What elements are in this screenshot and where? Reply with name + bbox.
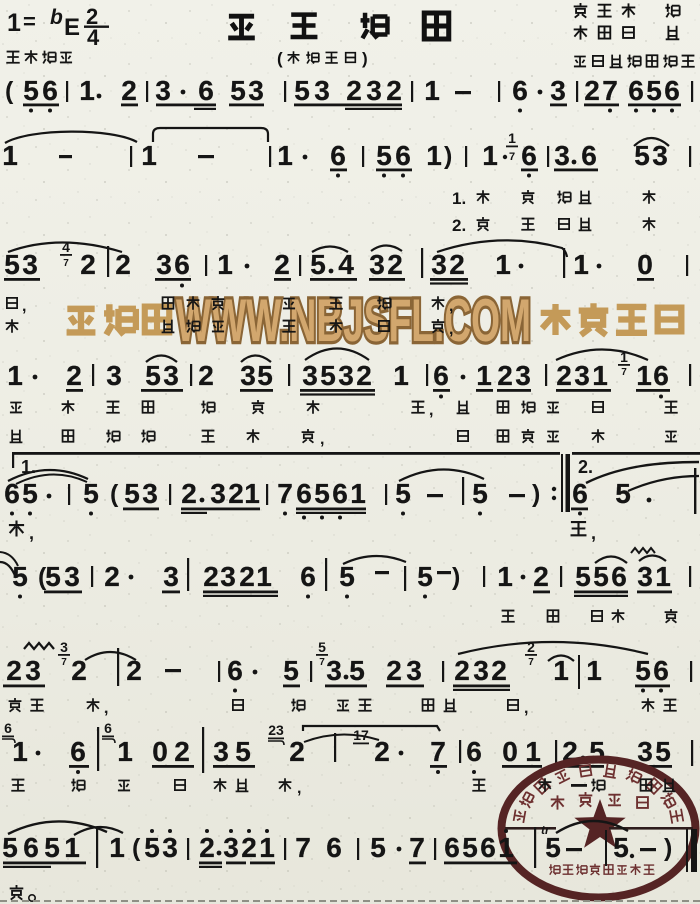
svg-text:4: 4 <box>338 249 354 280</box>
svg-text:0: 0 <box>502 736 518 767</box>
svg-text:17: 17 <box>353 727 369 743</box>
svg-text:1: 1 <box>350 478 366 509</box>
svg-text:3: 3 <box>406 655 422 686</box>
svg-text:2: 2 <box>239 561 255 592</box>
svg-text:1: 1 <box>217 249 233 280</box>
svg-text:5: 5 <box>230 75 246 106</box>
svg-text:2.: 2. <box>452 216 466 235</box>
svg-text:6: 6 <box>104 720 112 736</box>
svg-text:1: 1 <box>525 736 541 767</box>
svg-text:2: 2 <box>198 360 214 391</box>
svg-text:5: 5 <box>44 832 60 863</box>
svg-text:WWW.NBJSFL.COM: WWW.NBJSFL.COM <box>176 287 531 354</box>
svg-text:7: 7 <box>602 75 618 106</box>
svg-text:2: 2 <box>346 75 362 106</box>
svg-text:2: 2 <box>199 832 215 863</box>
svg-text:5: 5 <box>144 832 160 863</box>
svg-text:6: 6 <box>572 478 588 509</box>
svg-text:(: ( <box>132 834 141 862</box>
svg-text:(: ( <box>5 77 14 105</box>
svg-text:3: 3 <box>142 478 158 509</box>
svg-text:5: 5 <box>395 478 411 509</box>
svg-text:6: 6 <box>466 736 482 767</box>
svg-text:1: 1 <box>495 249 511 280</box>
svg-text:5: 5 <box>294 75 310 106</box>
svg-text:2: 2 <box>80 249 96 280</box>
svg-text:1: 1 <box>476 360 492 391</box>
svg-text:7: 7 <box>319 657 325 668</box>
svg-text:,: , <box>297 780 301 797</box>
svg-text:6: 6 <box>326 832 342 863</box>
svg-text:1: 1 <box>498 832 514 863</box>
svg-text:2: 2 <box>491 655 507 686</box>
svg-text:1: 1 <box>592 360 608 391</box>
svg-text:3: 3 <box>248 75 264 106</box>
svg-text:,: , <box>449 321 453 338</box>
svg-text:(: ( <box>110 480 119 508</box>
svg-text:2.: 2. <box>578 457 593 477</box>
svg-text:5: 5 <box>235 736 251 767</box>
svg-text:3: 3 <box>220 561 236 592</box>
svg-text:3: 3 <box>369 249 385 280</box>
svg-text:1: 1 <box>244 478 260 509</box>
svg-text:5: 5 <box>83 478 99 509</box>
svg-text:6: 6 <box>300 561 316 592</box>
svg-text:7: 7 <box>528 657 534 668</box>
svg-text:7: 7 <box>295 832 311 863</box>
svg-text:3: 3 <box>213 736 229 767</box>
svg-text:5: 5 <box>462 832 478 863</box>
svg-text:7: 7 <box>509 151 515 163</box>
svg-text:0: 0 <box>637 249 653 280</box>
svg-text:3: 3 <box>550 75 566 106</box>
svg-text:3: 3 <box>240 360 256 391</box>
svg-text:6: 6 <box>395 140 411 171</box>
svg-text:1: 1 <box>277 140 293 171</box>
svg-text:7: 7 <box>277 478 293 509</box>
svg-text:2: 2 <box>289 736 305 767</box>
svg-text:2: 2 <box>228 478 244 509</box>
svg-text:3: 3 <box>25 655 41 686</box>
svg-text:4: 4 <box>87 25 100 50</box>
svg-text:E: E <box>64 14 80 41</box>
svg-text:3: 3 <box>162 832 178 863</box>
svg-text:1: 1 <box>620 349 628 365</box>
svg-text:2: 2 <box>174 736 190 767</box>
svg-text:2: 2 <box>274 249 290 280</box>
svg-text:3: 3 <box>210 478 226 509</box>
svg-text:2: 2 <box>454 655 470 686</box>
svg-text:2: 2 <box>241 832 257 863</box>
svg-text:6: 6 <box>296 478 312 509</box>
svg-text:5: 5 <box>376 140 392 171</box>
svg-text:,: , <box>29 523 34 543</box>
svg-text:5: 5 <box>257 360 273 391</box>
svg-text:7: 7 <box>430 736 446 767</box>
svg-text:3: 3 <box>64 561 80 592</box>
svg-text:3: 3 <box>106 360 122 391</box>
svg-text:5: 5 <box>2 832 18 863</box>
svg-text:5: 5 <box>349 655 365 686</box>
svg-text:6: 6 <box>628 75 644 106</box>
svg-text:5: 5 <box>320 360 336 391</box>
svg-text:,: , <box>320 431 324 448</box>
svg-text:3: 3 <box>338 360 354 391</box>
svg-text:2: 2 <box>181 478 197 509</box>
svg-text:5: 5 <box>124 478 140 509</box>
svg-text:2: 2 <box>126 655 142 686</box>
svg-text:1: 1 <box>64 832 80 863</box>
svg-text:=: = <box>23 9 36 34</box>
svg-text:,: , <box>22 298 26 315</box>
svg-text:5: 5 <box>615 478 631 509</box>
svg-text:1: 1 <box>109 832 125 863</box>
svg-text:2: 2 <box>71 655 87 686</box>
svg-text:1: 1 <box>426 140 442 171</box>
svg-text:5: 5 <box>23 75 39 106</box>
svg-text:1: 1 <box>424 75 440 106</box>
svg-text:5: 5 <box>22 478 38 509</box>
svg-text:1: 1 <box>553 655 569 686</box>
svg-text:3: 3 <box>60 639 68 655</box>
svg-text:,: , <box>449 298 453 315</box>
svg-text:6: 6 <box>433 360 449 391</box>
svg-text:6: 6 <box>330 140 346 171</box>
svg-text:1: 1 <box>508 130 516 146</box>
svg-text:2: 2 <box>6 655 22 686</box>
svg-text:): ) <box>532 480 540 508</box>
svg-text:): ) <box>452 563 460 591</box>
svg-text:3: 3 <box>163 360 179 391</box>
svg-text:2: 2 <box>374 736 390 767</box>
svg-text:3: 3 <box>326 655 342 686</box>
svg-text:7: 7 <box>63 258 69 269</box>
svg-text:6: 6 <box>70 736 86 767</box>
svg-text:1: 1 <box>256 561 272 592</box>
svg-text:1: 1 <box>12 736 28 767</box>
svg-text:6: 6 <box>227 655 243 686</box>
svg-text:7: 7 <box>621 367 627 378</box>
svg-text:1: 1 <box>79 75 95 106</box>
svg-text:3: 3 <box>554 140 570 171</box>
svg-text:5: 5 <box>635 655 651 686</box>
svg-text:1: 1 <box>7 360 23 391</box>
svg-text:): ) <box>444 142 452 170</box>
svg-text:1: 1 <box>636 360 652 391</box>
svg-text:3: 3 <box>366 75 382 106</box>
svg-text:1: 1 <box>482 140 498 171</box>
svg-text:3: 3 <box>473 655 489 686</box>
svg-text:1: 1 <box>141 140 157 171</box>
svg-text:1: 1 <box>259 832 275 863</box>
svg-text:2: 2 <box>66 360 82 391</box>
svg-text:3: 3 <box>155 75 171 106</box>
svg-text:2: 2 <box>115 249 131 280</box>
svg-text:1: 1 <box>655 561 671 592</box>
svg-text:7: 7 <box>61 657 67 668</box>
svg-text:2: 2 <box>533 561 549 592</box>
svg-text:3: 3 <box>223 832 239 863</box>
svg-text:5: 5 <box>593 561 609 592</box>
svg-text:): ) <box>664 834 672 862</box>
svg-text:(: ( <box>277 49 283 68</box>
svg-text:6: 6 <box>480 832 496 863</box>
svg-text:6: 6 <box>653 655 669 686</box>
svg-text:6: 6 <box>653 360 669 391</box>
svg-text:6: 6 <box>174 249 190 280</box>
svg-text:5: 5 <box>45 561 61 592</box>
svg-text:3: 3 <box>22 249 38 280</box>
svg-text:3: 3 <box>574 360 590 391</box>
svg-text:b: b <box>50 6 63 29</box>
svg-text:1: 1 <box>586 655 602 686</box>
svg-text:1: 1 <box>2 140 18 171</box>
svg-text:2: 2 <box>104 561 120 592</box>
svg-text:6: 6 <box>23 832 39 863</box>
svg-text:2: 2 <box>386 75 402 106</box>
svg-text:6: 6 <box>512 75 528 106</box>
svg-text:6: 6 <box>444 832 460 863</box>
svg-text:2: 2 <box>356 360 372 391</box>
svg-text:1.: 1. <box>452 189 466 208</box>
svg-text:3: 3 <box>163 561 179 592</box>
svg-text:2: 2 <box>203 561 219 592</box>
svg-text:,: , <box>591 523 596 543</box>
svg-text:,: , <box>524 700 528 717</box>
svg-text:3: 3 <box>302 360 318 391</box>
svg-text:5: 5 <box>4 249 20 280</box>
svg-text:5: 5 <box>339 561 355 592</box>
svg-text:5: 5 <box>634 140 650 171</box>
svg-text:6: 6 <box>521 140 537 171</box>
svg-text:1: 1 <box>117 736 133 767</box>
svg-text:2: 2 <box>584 75 600 106</box>
svg-text:5: 5 <box>545 832 561 863</box>
svg-text:1: 1 <box>7 9 21 37</box>
svg-text:5: 5 <box>12 561 28 592</box>
svg-text:1: 1 <box>393 360 409 391</box>
svg-text:,: , <box>429 402 433 419</box>
svg-text:2: 2 <box>449 249 465 280</box>
svg-text:2: 2 <box>387 249 403 280</box>
svg-text:1: 1 <box>573 249 589 280</box>
svg-text:6: 6 <box>611 561 627 592</box>
svg-text:6: 6 <box>42 75 58 106</box>
svg-text:5: 5 <box>646 75 662 106</box>
svg-text:4: 4 <box>62 239 70 255</box>
svg-text:0: 0 <box>152 736 168 767</box>
svg-text:3: 3 <box>431 249 447 280</box>
svg-text:3: 3 <box>515 360 531 391</box>
svg-text:2: 2 <box>386 655 402 686</box>
svg-text:2: 2 <box>497 360 513 391</box>
svg-text:5: 5 <box>370 832 386 863</box>
svg-text:5: 5 <box>655 736 671 767</box>
svg-text:5: 5 <box>145 360 161 391</box>
svg-text:2: 2 <box>121 75 137 106</box>
svg-text:6: 6 <box>581 140 597 171</box>
svg-text:6: 6 <box>332 478 348 509</box>
svg-text:5: 5 <box>314 478 330 509</box>
svg-text:3: 3 <box>637 561 653 592</box>
svg-text:): ) <box>362 49 368 68</box>
svg-text:2: 2 <box>556 360 572 391</box>
svg-text:5: 5 <box>417 561 433 592</box>
svg-text:3: 3 <box>314 75 330 106</box>
svg-text:5: 5 <box>310 249 326 280</box>
svg-text:3: 3 <box>156 249 172 280</box>
svg-text:6: 6 <box>198 75 214 106</box>
svg-text:6: 6 <box>4 720 12 736</box>
svg-text:3: 3 <box>652 140 668 171</box>
svg-text:7: 7 <box>409 832 425 863</box>
svg-text:5: 5 <box>472 478 488 509</box>
svg-text:5: 5 <box>318 639 326 655</box>
svg-text:,: , <box>104 700 108 717</box>
svg-text:6: 6 <box>664 75 680 106</box>
svg-text:23: 23 <box>268 722 284 738</box>
svg-text:5: 5 <box>613 832 629 863</box>
svg-text:5: 5 <box>283 655 299 686</box>
svg-text:1: 1 <box>497 561 513 592</box>
svg-text:5: 5 <box>575 561 591 592</box>
svg-text:2: 2 <box>527 639 535 655</box>
